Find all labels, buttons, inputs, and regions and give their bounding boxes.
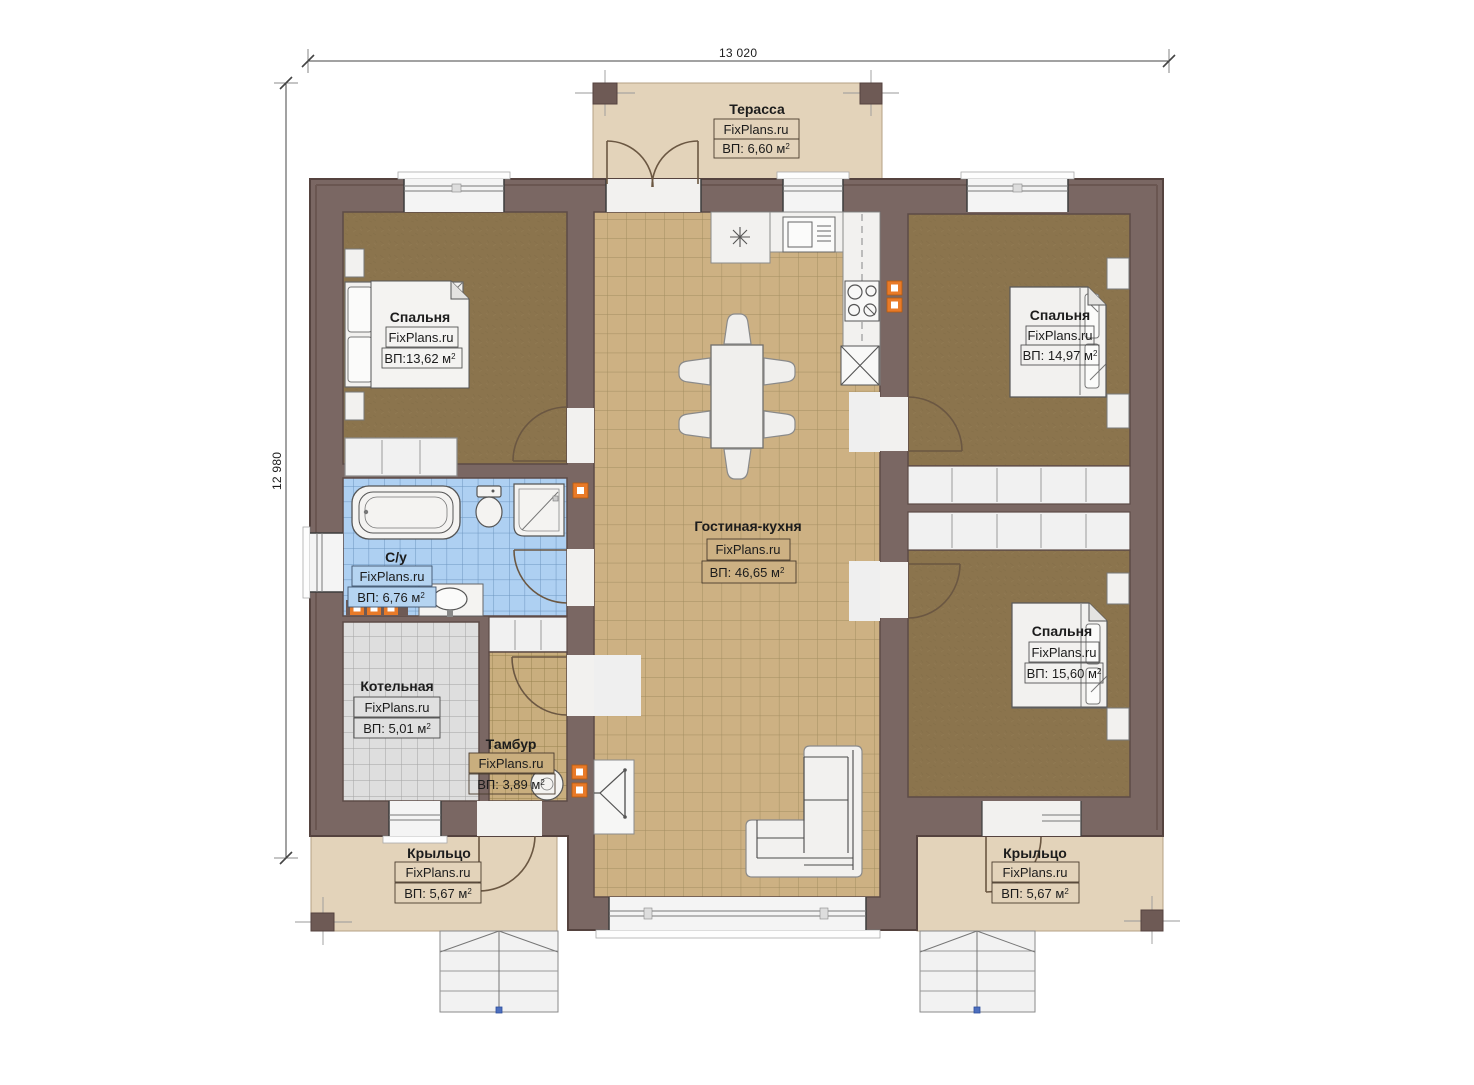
svg-text:FixPlans.ru: FixPlans.ru [1031, 645, 1096, 660]
svg-text:ВП: 5,01 м2: ВП: 5,01 м2 [363, 721, 431, 736]
svg-text:FixPlans.ru: FixPlans.ru [1027, 328, 1092, 343]
svg-text:Спальня: Спальня [1032, 623, 1092, 639]
svg-text:Тамбур: Тамбур [486, 736, 537, 752]
svg-text:Крыльцо: Крыльцо [1003, 845, 1067, 861]
svg-text:ВП: 3,89 м2: ВП: 3,89 м2 [477, 777, 545, 792]
svg-text:ВП: 46,65 м2: ВП: 46,65 м2 [710, 565, 785, 580]
svg-text:Терасса: Терасса [729, 101, 785, 117]
svg-text:FixPlans.ru: FixPlans.ru [1002, 865, 1067, 880]
svg-text:FixPlans.ru: FixPlans.ru [723, 122, 788, 137]
svg-text:FixPlans.ru: FixPlans.ru [715, 542, 780, 557]
svg-text:ВП: 5,67 м2: ВП: 5,67 м2 [404, 886, 472, 901]
svg-text:FixPlans.ru: FixPlans.ru [405, 865, 470, 880]
svg-text:FixPlans.ru: FixPlans.ru [359, 569, 424, 584]
svg-text:Крыльцо: Крыльцо [407, 845, 471, 861]
svg-text:Гостиная-кухня: Гостиная-кухня [694, 518, 801, 534]
svg-text:ВП: 14,97 м2: ВП: 14,97 м2 [1023, 348, 1098, 363]
svg-text:Спальня: Спальня [1030, 307, 1090, 323]
svg-text:FixPlans.ru: FixPlans.ru [364, 700, 429, 715]
svg-text:С/у: С/у [385, 549, 407, 565]
svg-text:13 020: 13 020 [719, 46, 757, 60]
svg-text:Спальня: Спальня [390, 309, 450, 325]
svg-text:FixPlans.ru: FixPlans.ru [478, 756, 543, 771]
svg-text:ВП: 5,67 м2: ВП: 5,67 м2 [1001, 886, 1069, 901]
svg-text:Котельная: Котельная [360, 678, 433, 694]
svg-text:FixPlans.ru: FixPlans.ru [388, 330, 453, 345]
svg-text:ВП: 15,60 м2: ВП: 15,60 м2 [1027, 666, 1102, 681]
svg-text:ВП:13,62 м2: ВП:13,62 м2 [384, 351, 456, 366]
svg-text:12 980: 12 980 [270, 452, 284, 490]
svg-text:ВП: 6,60 м2: ВП: 6,60 м2 [722, 141, 790, 156]
svg-text:ВП: 6,76 м2: ВП: 6,76 м2 [357, 590, 425, 605]
